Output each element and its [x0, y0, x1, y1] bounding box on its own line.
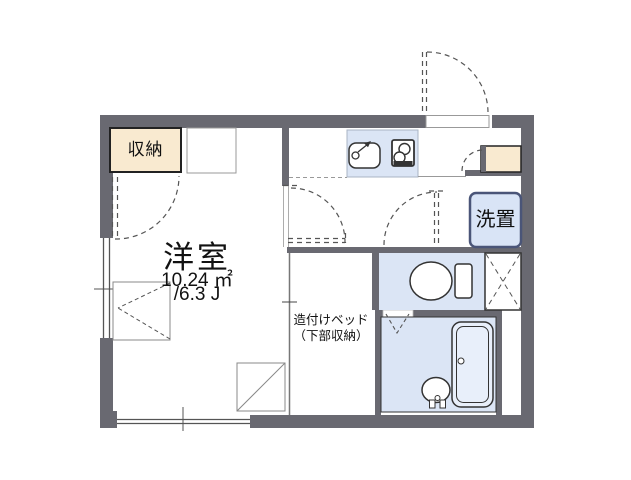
entrance-threshold [426, 116, 489, 128]
bed-step-box [237, 363, 285, 411]
built-in-bed-label: 造付けベッド （下部収納） [291, 312, 371, 344]
bathtub-icon [452, 322, 493, 407]
toilet-icon [410, 262, 472, 300]
closet-label: 収納 [110, 128, 181, 172]
window-left [100, 238, 113, 338]
open-shelf-box [187, 128, 236, 173]
built-in-bed-label-line2: （下部収納） [291, 328, 371, 344]
room-door-swing [283, 186, 346, 244]
washroom-door-swing [384, 191, 443, 245]
sink-icon [349, 141, 380, 168]
laundry-label: 洗置 [470, 193, 521, 247]
shoe-cabinet [481, 146, 521, 172]
stove-icon [392, 140, 414, 166]
floor-plan: 収納 洋室 10.24 ㎡ /6.3 J 造付けベッド （下部収納） 洗置 [0, 0, 631, 480]
shoe-cabinet-door-swing [462, 150, 482, 171]
wall-room-divider [282, 128, 289, 186]
room-door-jamb [284, 186, 289, 247]
wall-bottom [250, 415, 534, 428]
built-in-bed-label-line1: 造付けベッド [291, 312, 371, 328]
wall-toilet-left [372, 253, 379, 310]
wall-bath-right [496, 317, 502, 415]
entrance-door-swing [423, 52, 489, 112]
floor-plan-drawing [0, 0, 631, 480]
wall-right [521, 115, 534, 428]
closet-door-swing [113, 176, 180, 239]
wall-bottom-corner [100, 411, 117, 428]
wall-bath-left [375, 317, 381, 415]
western-room-area-tatami: /6.3 J [137, 284, 257, 306]
wall-top-left [100, 115, 426, 128]
